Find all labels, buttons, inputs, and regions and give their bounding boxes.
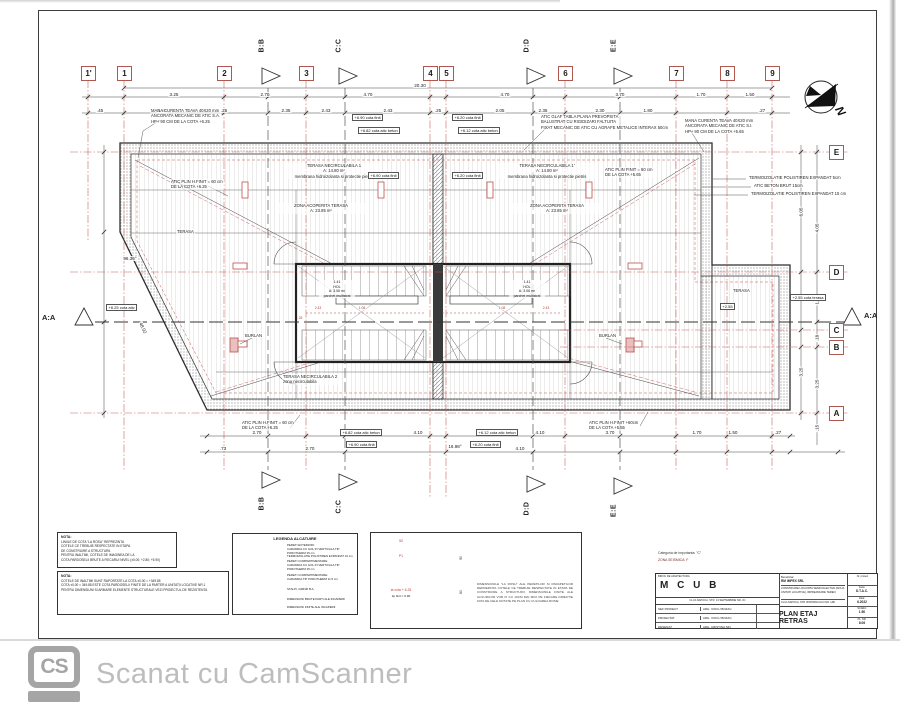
- annotation-atic-tr: ATIC PLIN FINIT = 60 cm DE LA COTA +5.65: [604, 167, 653, 178]
- nota2-body: COTELE DE INALTIMI SUNT RAPORTATE LA COT…: [61, 579, 225, 592]
- dim-label: 2.30: [595, 108, 606, 113]
- annotation-handrail-right: MANA CURENTA TEAVA 40X20 mm ANCORATA MEC…: [684, 118, 754, 134]
- annotation-terasa-necirc-left: TERASA NECIRCULABILA 1 A: 14.80 m² membr…: [288, 163, 380, 179]
- angle-label-bottom: 16.98°: [447, 444, 462, 449]
- dim-label: 1.80: [643, 108, 654, 113]
- legend-entry: DIMENSIUNI BRUTE PARTI ALE INCAPERII: [287, 598, 353, 602]
- cota-label: +6.82 cota atic beton: [340, 429, 382, 436]
- grid-marker-9: 9: [765, 66, 780, 81]
- seismic-zone: ZONA SEISMICA: F: [658, 558, 688, 563]
- annotation-atic-beton: ATIC BETON BRUT 15cm: [753, 183, 804, 188]
- section-flag-ee-top: E:E: [611, 31, 618, 61]
- detail-note-text: DIMENSIUNILE "LA ROSU" ALE PERETILOR SI …: [477, 582, 573, 603]
- camscanner-logo-text: CS: [40, 655, 67, 679]
- grid-marker-E: E: [829, 145, 844, 160]
- dim-label: .25: [434, 108, 442, 113]
- nota1-title: NOTA:: [61, 535, 71, 539]
- legend-entry: PERETI COMPARTIMENTARE: CARAMIDA CU GOL …: [287, 560, 353, 571]
- cota-label: +6.90 cota finit: [346, 441, 377, 448]
- legend-entry: STALPI, GRINZI B.A.: [287, 588, 353, 592]
- legend-entry: PERETI COMPARTIMENTARE: CARAMIDA TIP POR…: [287, 574, 353, 582]
- annotation-atic-bl: ATIC PLIN H.FINIT = 60 cm DE LA COTA +6.…: [241, 420, 295, 431]
- camscanner-watermark-text: Scanat cu CamScanner: [96, 658, 412, 691]
- legend-title: LEGENDA ALCATUIRE: [233, 534, 357, 541]
- grid-marker-5: 5: [439, 66, 454, 81]
- dim-label: .45: [96, 108, 104, 113]
- cota-label: +2.55: [720, 303, 735, 310]
- annotation-atic-tl: ATIC PLIN H.FINIT = 60 cm DE LA COTA +6.…: [170, 179, 224, 190]
- angle-label-left: 96.36°: [122, 256, 137, 261]
- row-name: ARH. CRISTINA SIN: [700, 625, 731, 629]
- meta-key: Nr. proiect: [849, 575, 876, 578]
- row-role: PROIECTAT: [658, 616, 675, 620]
- section-flag-ee-bottom: E:E: [611, 496, 618, 526]
- meta-cell: PL. NR. 8.06: [847, 617, 877, 629]
- annotation-terasa-ext: TERASA: [732, 288, 751, 293]
- nota-box-1: NOTA: LINIILE DE COTA "LA ROSU" REPREZIN…: [57, 532, 177, 568]
- nota1-body: LINIILE DE COTA "LA ROSU" REPREZINTA COT…: [61, 540, 173, 562]
- section-flag-bb-bottom: B:B: [259, 489, 266, 519]
- dim-label: 3.25: [169, 92, 180, 97]
- annotation-terasa-necirc-2: TERASA NECIRCULABILA 2 zona necirculabil…: [282, 374, 338, 385]
- grid-marker-8: 8: [720, 66, 735, 81]
- dim-label: 3.70: [615, 92, 626, 97]
- scan-edge-right: [889, 0, 896, 640]
- cota-label: +6.20 cota finit: [470, 441, 501, 448]
- row-name: ARH. VOICU BOZAC: [700, 616, 732, 620]
- grid-marker-A: A: [829, 406, 844, 421]
- dim-label: 3.70: [605, 430, 616, 435]
- dim-label: 4.10: [535, 430, 546, 435]
- row-role: DESENAT: [658, 625, 672, 629]
- annotation-atic-glaf: ATIC GLAF TABLA PLANA PREVOPSITA BALUSTR…: [540, 114, 669, 130]
- section-flag-dd-bottom: D:D: [524, 494, 531, 524]
- dim-label: 2.43: [321, 108, 332, 113]
- meta-value: D.T.A.C.: [847, 589, 877, 593]
- grid-marker-1: 1: [117, 66, 132, 81]
- dim-label: 1.50: [728, 430, 739, 435]
- project-title: CONSTRUIRE LOCUINTA SEMICOLECTIVA (DOUA …: [781, 585, 845, 594]
- annotation-zona-acoperita-left: ZONA ACOPERITA TERASA A: 23.85 m²: [276, 203, 366, 214]
- dim-label-v: 6.05: [799, 207, 804, 218]
- sheet-title: PLAN ETAJ RETRAS: [779, 606, 847, 629]
- detail-dim-90: 90: [459, 555, 463, 561]
- dim-label-v: 3.25: [799, 367, 804, 378]
- grid-marker-7: 7: [669, 66, 684, 81]
- annotation-termo-5: TERMOIZOLATIE POLISTIREN EXPANDAT 5cm: [748, 175, 842, 180]
- dim-label-v: 4.05: [815, 223, 820, 234]
- cota-label: +6.90 cota finit: [368, 172, 399, 179]
- annotation-handrail-left: MANA CURENTA TEAVA 40X20 mm ANCORATA MEC…: [150, 108, 221, 124]
- section-flag-cc-top: C:C: [336, 31, 343, 61]
- dim-label-v: 3.25: [815, 379, 820, 390]
- cota-label: +6.20 cota finit: [452, 114, 483, 121]
- camscanner-logo: CS: [28, 646, 80, 702]
- beneficiary-name: RM IMPEX SRL: [781, 579, 845, 583]
- core-dim: 1.08: [359, 306, 366, 310]
- dim-label: 1.50: [745, 92, 756, 97]
- legend-entry: PERETI EXTERIORI: CARAMIDA CU GOL IN VER…: [287, 544, 353, 559]
- section-label-aa-right: A:A: [864, 311, 877, 320]
- cota-label: +6.12 cota atic beton: [476, 429, 518, 436]
- detail-dim-60: 60: [459, 589, 463, 595]
- cota-label: +6.20 cota finit: [452, 172, 483, 179]
- section-flag-bb-top: B:B: [259, 31, 266, 61]
- annotation-burlan-right: BURLAN: [598, 333, 617, 338]
- grid-marker-B: B: [829, 340, 844, 355]
- dim-label: .27: [758, 108, 766, 113]
- room-label-left: 1.41 HOL A: 3.06 m² parchet multistrat: [319, 280, 355, 298]
- section-flag-cc-bottom: C:C: [336, 492, 343, 522]
- section-label-aa-left: A:A: [42, 313, 55, 322]
- core-dim: 2.43: [543, 306, 550, 310]
- dim-label: 2.05: [495, 108, 506, 113]
- core-dim: .25: [298, 316, 303, 320]
- legend-entry: DIMENSIUNI FINITE ALE INCAPERII: [287, 606, 353, 610]
- office-name: M C U B: [660, 580, 778, 591]
- cota-label: +6.25 cota atic: [106, 304, 137, 311]
- row-role: SEF PROIECT: [658, 607, 678, 611]
- annotation-termo-15: TERMOIZOLATIE POLISTIREN EXPANDAT 15 cm: [750, 191, 847, 196]
- dim-label: 4.70: [500, 92, 511, 97]
- meta-value: 6.2022: [847, 600, 877, 604]
- annotation-atic-br: ATIC PLIN H.FINIT +60cm DE LA COTA +5.55: [588, 420, 639, 431]
- row-sign: [756, 605, 757, 613]
- dim-label: 1.70: [696, 92, 707, 97]
- detail-cota-red: la cota + 6.25: [391, 588, 411, 592]
- stair-core: [274, 242, 592, 384]
- detail-cota-finit: tip finit = 6.90: [391, 594, 412, 598]
- cota-label: +6.90 cota finit: [352, 114, 383, 121]
- dim-overall: 20.30: [413, 83, 427, 88]
- cota-label: +6.82 cota atic beton: [358, 127, 400, 134]
- grid-marker-3: 3: [299, 66, 314, 81]
- row-sign: [756, 623, 757, 629]
- camscanner-logo-base: [28, 691, 80, 702]
- annotation-terasa-necirc-right: TERASA NECIRCULABILA 1' A: 14.80 m² memb…: [498, 163, 596, 179]
- dim-label-v: .18: [815, 334, 820, 342]
- dim-label: .27: [774, 430, 782, 435]
- detail-dim-50: 50: [399, 539, 403, 543]
- core-dim: 1.08: [499, 306, 506, 310]
- dim-label: 4.10: [515, 446, 526, 451]
- detail-p1-label: P1: [399, 554, 403, 558]
- dim-label: 2.70: [252, 430, 263, 435]
- cota-label: +6.12 cota atic beton: [458, 127, 500, 134]
- dim-label: 2.70: [305, 446, 316, 451]
- nota-box-2: NOTA: COTELE DE INALTIMI SUNT RAPORTATE …: [57, 571, 229, 615]
- signature-rows: SEF PROIECT ARH. VOICU BOZAC PROIECTAT A…: [656, 604, 779, 629]
- scan-edge-bottom: [0, 639, 900, 641]
- annotation-burlan-left: BURLAN: [244, 333, 263, 338]
- room-label-right: 1.41 HOL A: 3.06 m² parchet multistrat: [509, 280, 545, 298]
- dim-label: 2.35: [538, 108, 549, 113]
- meta-value: 1:50: [847, 610, 877, 614]
- cota-label: +2.55 cota terasa: [790, 294, 826, 301]
- nota2-title: NOTA:: [61, 574, 71, 578]
- title-block: BIROU DE ARHITECTURA M C U B CLUJ-NAPOCA…: [655, 573, 878, 629]
- scan-edge-top: [0, 0, 560, 3]
- grid-marker-C: C: [829, 323, 844, 338]
- grid-marker-2: 2: [217, 66, 232, 81]
- core-dim: 2.43: [315, 306, 322, 310]
- row-sign: [756, 614, 757, 622]
- grid-marker-4: 4: [423, 66, 438, 81]
- dim-label: 1.70: [692, 430, 703, 435]
- grid-marker-1p: 1': [81, 66, 96, 81]
- project-address: CLUJ-NAPOCA, STR. BORHANCULUI NR. 14B: [781, 599, 845, 604]
- grid-marker-D: D: [829, 265, 844, 280]
- meta-value: 8.06: [847, 621, 877, 625]
- annotation-terasa-left: TERASA: [176, 229, 195, 234]
- dim-label-v: .15: [815, 424, 820, 432]
- dim-label: 2.43: [383, 108, 394, 113]
- dim-label: 4.70: [363, 92, 374, 97]
- dim-label: 2.35: [281, 108, 292, 113]
- section-flag-dd-top: D:D: [524, 31, 531, 61]
- dim-label: 4.10: [413, 430, 424, 435]
- dim-label: .73: [219, 446, 227, 451]
- importance-category: Categoria de importanta: "C": [658, 551, 701, 556]
- annotation-zona-acoperita-right: ZONA ACOPERITA TERASA A: 23.85 m²: [512, 203, 602, 214]
- office-address: CLUJ-NAPOCA, STR. 13 SEPTEMBRIE NR. 3C: [656, 597, 779, 602]
- detail-box: [370, 532, 582, 629]
- dim-label: 2.70: [260, 92, 271, 97]
- camscanner-logo-box: CS: [28, 646, 80, 688]
- office-header: BIROU DE ARHITECTURA: [658, 575, 778, 578]
- scanned-drawing-page: 1' 1 2 3 4 5 6 7 8 9 E D C B A B:B C:C D…: [0, 0, 900, 713]
- grid-marker-6: 6: [558, 66, 573, 81]
- row-name: ARH. VOICU BOZAC: [700, 607, 732, 611]
- north-arrow-icon: [805, 81, 838, 113]
